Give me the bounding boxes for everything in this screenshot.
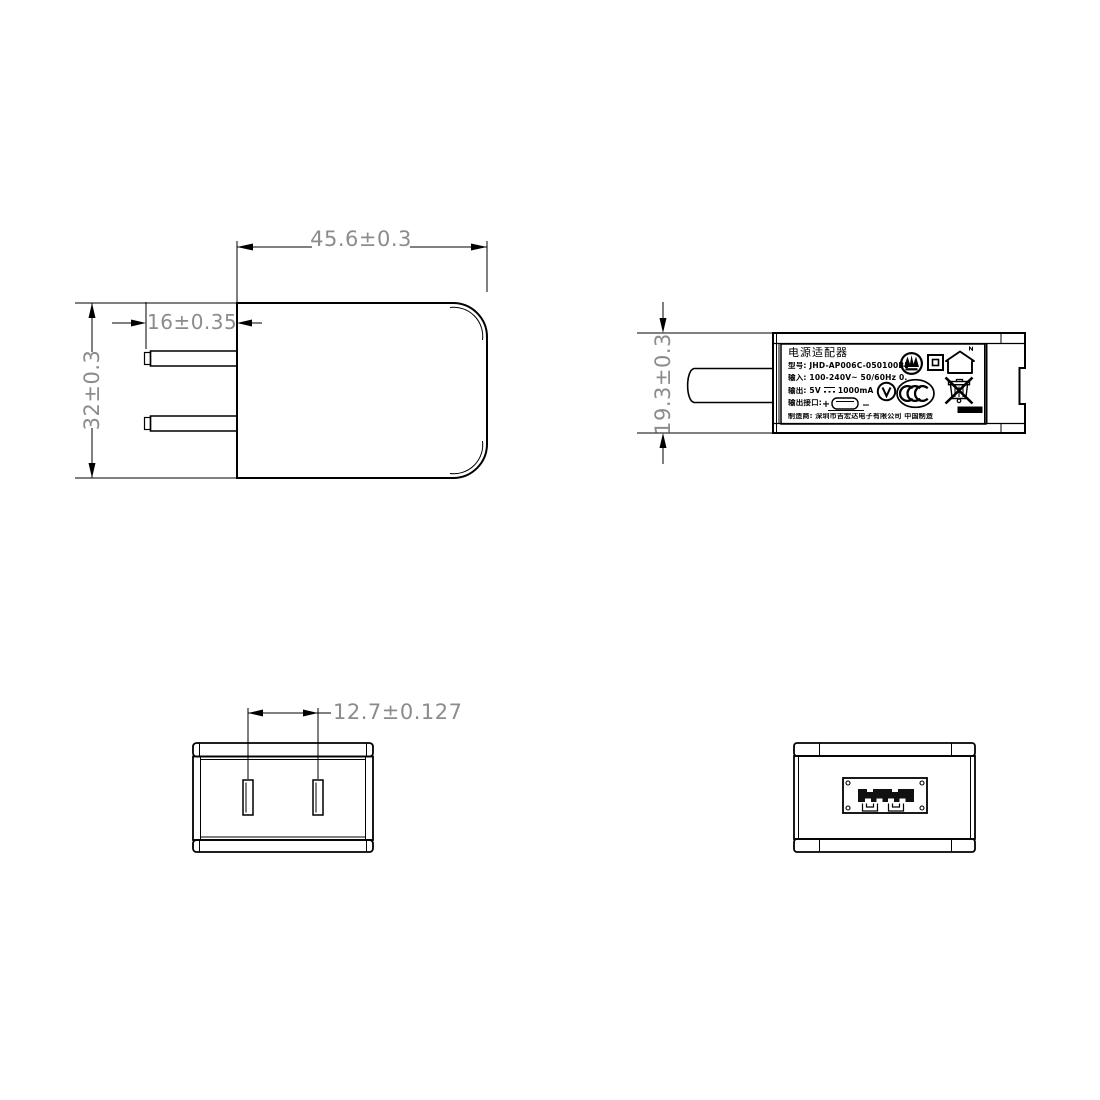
label-port-minus: −	[862, 400, 870, 411]
usb-face-view	[794, 743, 975, 852]
front-view	[75, 241, 487, 478]
dimension-side-thickness: 19.3±0.3	[652, 319, 674, 449]
class-ii-double-insulation-icon	[928, 355, 943, 370]
dimension-front-width: 45.6±0.3	[291, 228, 431, 250]
drawing-linework	[0, 0, 1100, 1100]
label-output: 输出: 5V 1000mA	[788, 387, 883, 395]
dimension-front-height: 32±0.3	[81, 330, 103, 450]
prong-slot-left	[243, 780, 253, 815]
label-input: 输入: 100-240V~ 50/60Hz 0.2A	[788, 374, 908, 382]
prong-slot-right	[313, 780, 323, 815]
black-bar	[958, 407, 983, 414]
prong-top	[145, 351, 238, 366]
indoor-use-only-icon	[946, 347, 974, 373]
label-output-prefix: 输出: 5V	[788, 387, 821, 395]
label-output-suffix: 1000mA	[838, 387, 874, 395]
label-title: 电源适配器	[788, 347, 898, 359]
label-port-plus: +	[822, 399, 830, 410]
technical-drawing-canvas: 45.6±0.3 16±0.35 32±0.3 19.3±0.3 12.7±0.…	[0, 0, 1100, 1100]
usb-port	[843, 778, 927, 813]
prong-bottom	[145, 416, 238, 431]
side-view	[637, 302, 1025, 464]
usb-connector-icon	[828, 398, 864, 411]
dimension-prong-spacing: 12.7±0.127	[333, 701, 473, 723]
label-maker: 制造商: 深圳市吉宏达电子有限公司 中国制造	[788, 413, 956, 421]
dimension-prong-length: 16±0.35	[147, 311, 233, 333]
plug-face-view	[193, 708, 373, 852]
dc-symbol-icon	[824, 387, 835, 395]
weee-bin-icon	[946, 378, 973, 404]
label-model: 型号: JHD-AP006C-050100BB-2	[788, 362, 908, 370]
ccc-mark-icon	[897, 380, 934, 408]
prong-side	[688, 369, 773, 403]
